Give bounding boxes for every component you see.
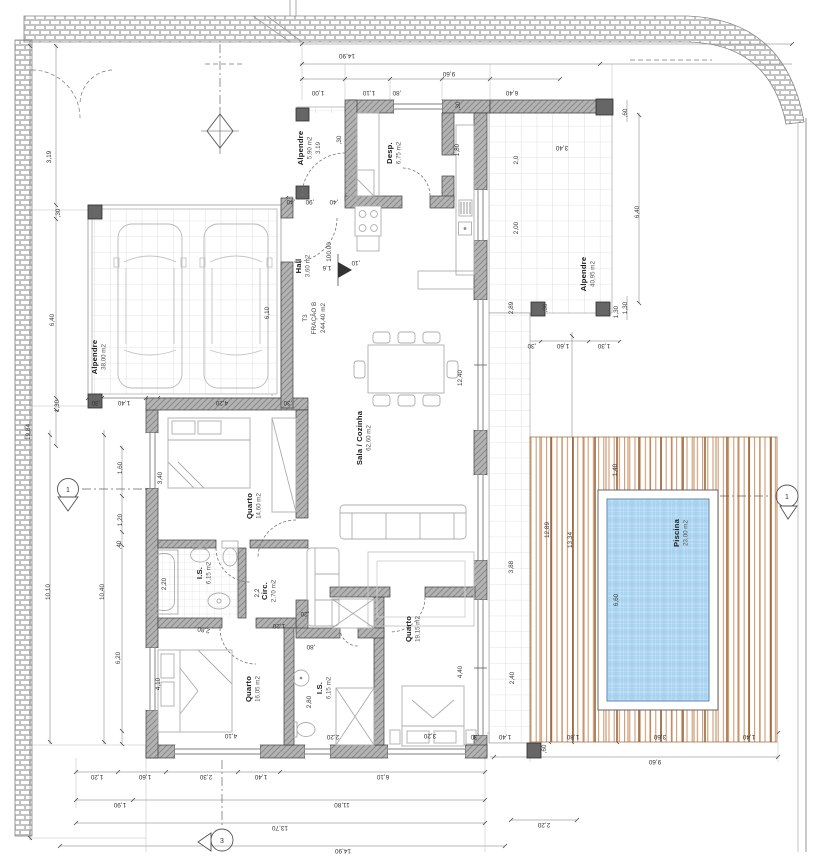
dim-label: 1,30 bbox=[613, 305, 620, 318]
carport-floor bbox=[92, 209, 277, 394]
dim-label: 1,40 bbox=[117, 399, 130, 406]
dim-label: 1,20 bbox=[90, 773, 103, 780]
room-label: Quarto16,05 m2 bbox=[244, 676, 262, 702]
dim-label: 3,20 bbox=[423, 732, 436, 739]
dim-label: 14,90 bbox=[339, 52, 355, 59]
sliding-glass-door bbox=[474, 300, 487, 430]
room-name: Alpendre bbox=[579, 257, 588, 292]
section-label: 1 bbox=[785, 494, 789, 501]
room-area: 62,60 m2 bbox=[366, 425, 373, 451]
dim-label: ,40 bbox=[286, 198, 295, 205]
dim-label: 1,20 bbox=[272, 622, 285, 629]
dim-label: 1,60 bbox=[117, 461, 124, 474]
stove-icon bbox=[355, 206, 381, 236]
room-area: 6,15 m2 bbox=[206, 561, 213, 584]
dim-label: 2,40 bbox=[509, 671, 516, 684]
dim-label: 6,10 bbox=[264, 306, 271, 319]
window bbox=[305, 745, 330, 758]
dim-label: 6,40 bbox=[634, 205, 641, 218]
dim-label: ,60 bbox=[541, 744, 548, 753]
dim-label: 1,80 bbox=[566, 733, 579, 740]
room-name: Alpendre bbox=[296, 131, 305, 166]
dim-label: 1,30 bbox=[54, 399, 61, 412]
glazed-door bbox=[474, 600, 487, 735]
room-name: Quarto bbox=[404, 616, 413, 642]
dim-label: ,30 bbox=[55, 208, 62, 217]
dim-label: 6,20 bbox=[115, 651, 122, 664]
room-name: Desp. bbox=[385, 142, 394, 164]
level-value: 100.00 bbox=[326, 242, 333, 262]
room-label: Circ.2,70 m2 bbox=[260, 579, 278, 602]
dim-label: ,60 bbox=[622, 108, 629, 117]
dim-label: 3,40 bbox=[555, 144, 568, 151]
room-label: Desp.6,75 m2 bbox=[385, 141, 403, 164]
dim-label: ,30 bbox=[470, 733, 479, 740]
dim-label: 2,0 bbox=[513, 155, 520, 164]
dim-label: 6,10 bbox=[376, 773, 389, 780]
room-label: Quarto14,60 m2 bbox=[245, 493, 263, 519]
section-marker-left: 1 bbox=[58, 479, 79, 512]
dim-label: 4,20 bbox=[215, 399, 228, 406]
room-area: 40,95 m2 bbox=[590, 261, 597, 287]
dim-label: 1,40 bbox=[254, 773, 267, 780]
glazed-door bbox=[474, 190, 487, 240]
room-name: Quarto bbox=[245, 493, 254, 519]
room-label: Alpendre40,95 m2 bbox=[579, 257, 597, 292]
dim-label: 2,2 bbox=[254, 588, 261, 597]
dim-label: 1,80 bbox=[454, 143, 461, 156]
dim-label: 4,10 bbox=[224, 732, 237, 739]
dim-label: 2,89 bbox=[508, 301, 515, 314]
dim-label: 1,00 bbox=[311, 89, 324, 96]
dim-label: 1,10 bbox=[362, 89, 375, 96]
room-name: Piscina bbox=[672, 518, 681, 547]
room-name: I.S. bbox=[195, 567, 204, 579]
room-name: Circ. bbox=[260, 582, 269, 600]
dim-label: 1,60 bbox=[556, 342, 569, 349]
dim-label: 9,60 bbox=[648, 758, 661, 765]
dim-label: 2,30 bbox=[199, 773, 212, 780]
pillar bbox=[296, 108, 309, 121]
dim-label: 2,20 bbox=[161, 577, 168, 590]
window bbox=[175, 745, 260, 758]
pillar bbox=[296, 186, 309, 199]
gate-leaf bbox=[205, 60, 712, 64]
dim-label: 4,10 bbox=[155, 677, 162, 690]
dim-label: ,30 bbox=[527, 342, 536, 349]
pillar bbox=[527, 743, 541, 758]
dim-label: 9,60 bbox=[442, 70, 455, 77]
room-area: 16,05 m2 bbox=[255, 676, 262, 702]
dim-label: 1,30 bbox=[622, 301, 629, 314]
room-area: 6,75 m2 bbox=[396, 141, 403, 164]
dim-label: 2,20 bbox=[537, 821, 550, 828]
dim-label: ,20 bbox=[300, 610, 309, 617]
unit-area: 244,40 m2 bbox=[320, 302, 327, 333]
dim-label: 6,60 bbox=[613, 593, 620, 606]
dim-label: 6,40 bbox=[505, 89, 518, 96]
pillar bbox=[596, 302, 610, 316]
dim-label: 1,6 bbox=[322, 264, 331, 271]
dim-label: 19,84 bbox=[25, 424, 32, 440]
room-area: 3,60 m2 bbox=[305, 254, 312, 277]
dim-label: ,80 bbox=[306, 643, 315, 650]
dim-label: 1,30 bbox=[597, 342, 610, 349]
window bbox=[388, 745, 465, 758]
dim-label: 12,89 bbox=[544, 522, 551, 538]
dim-label: 2,00 bbox=[513, 221, 520, 234]
dim-label: ,30 bbox=[283, 399, 292, 406]
room-area: 38,00 m2 bbox=[101, 344, 108, 370]
dim-label: ,90 bbox=[305, 198, 314, 205]
section-marker-right: 1 bbox=[776, 485, 798, 519]
room-area: 6,15 m2 bbox=[326, 676, 333, 699]
dim-label: 2,80 bbox=[306, 695, 313, 708]
dim-label: 12,40 bbox=[457, 370, 464, 386]
dim-label: 1,40 bbox=[612, 463, 619, 476]
dim-label: 6,40 bbox=[49, 313, 56, 326]
section-marker-bottom: 3 bbox=[198, 829, 233, 851]
room-label: Alpendre38,00 m2 bbox=[90, 340, 108, 375]
room-name: Hall bbox=[294, 259, 303, 274]
appliance-icon bbox=[459, 200, 472, 216]
dim-label: 3,19 bbox=[46, 150, 53, 163]
room-name: Alpendre bbox=[90, 340, 99, 375]
dim-label: ,80 bbox=[392, 89, 401, 96]
room-area: 5,90 m2 bbox=[307, 136, 314, 159]
dim-label: ,30 bbox=[455, 101, 462, 110]
dim-label: 1,60 bbox=[138, 773, 151, 780]
gate-swing-arc bbox=[32, 70, 112, 118]
room-label: Piscina23,00 m2 bbox=[672, 518, 690, 547]
dim-label: 13,34 bbox=[567, 532, 574, 548]
room-area: 23,00 m2 bbox=[683, 520, 690, 546]
dim-label: 1,40 bbox=[742, 733, 755, 740]
dim-label: 3,88 bbox=[508, 560, 515, 573]
dim-label: 11,80 bbox=[334, 801, 350, 808]
floor-plan-drawing: 1 1 3 100.00 T3 FRAÇÃO B 244,40 m2 Alpen… bbox=[0, 0, 816, 856]
dim-label: 10,40 bbox=[99, 584, 106, 600]
window bbox=[394, 100, 442, 113]
room-area: 2,70 m2 bbox=[271, 579, 278, 602]
room-area: 19,15 m2 bbox=[415, 616, 422, 642]
dim-label: 13,70 bbox=[272, 824, 288, 831]
dim-label: ,30 bbox=[542, 303, 549, 312]
dim-label: ,30 bbox=[336, 135, 343, 144]
section-label: 3 bbox=[220, 838, 224, 845]
glazed-door bbox=[474, 475, 487, 560]
dim-label: 14,90 bbox=[335, 847, 351, 854]
pillar bbox=[596, 99, 613, 115]
dim-label: 2,20 bbox=[326, 733, 339, 740]
dim-label: 10,10 bbox=[45, 584, 52, 600]
dim-label: ,10 bbox=[351, 259, 360, 266]
pillar bbox=[88, 205, 102, 219]
dim-label: 3,40 bbox=[157, 471, 164, 484]
room-area: 14,60 m2 bbox=[256, 493, 263, 519]
room-name: Sala / Cozinha bbox=[355, 410, 364, 465]
room-extra: 3.19 bbox=[315, 141, 322, 154]
dim-label: 4,40 bbox=[457, 665, 464, 678]
room-name: Quarto bbox=[244, 676, 253, 702]
dim-label: 3,60 bbox=[653, 733, 666, 740]
pool-water bbox=[607, 499, 709, 701]
unit-type: T3 bbox=[302, 314, 309, 322]
dim-label: 1,90 bbox=[113, 801, 126, 808]
room-name: I.S. bbox=[315, 682, 324, 694]
dim-label: ,30 bbox=[91, 399, 100, 406]
dim-label: 1,20 bbox=[117, 513, 124, 526]
dim-label: 1,40 bbox=[498, 733, 511, 740]
section-label: 1 bbox=[66, 487, 70, 494]
pool-area bbox=[530, 437, 777, 742]
room-label: Quarto19,15 m2 bbox=[404, 616, 422, 642]
dim-label: ,40 bbox=[116, 540, 123, 549]
dim-label: ,40 bbox=[329, 198, 338, 205]
north-datum-icon bbox=[201, 108, 239, 154]
unit-fraction: FRAÇÃO B bbox=[309, 302, 318, 335]
floor-plan-sheet: 1 1 3 100.00 T3 FRAÇÃO B 244,40 m2 Alpen… bbox=[0, 0, 816, 856]
